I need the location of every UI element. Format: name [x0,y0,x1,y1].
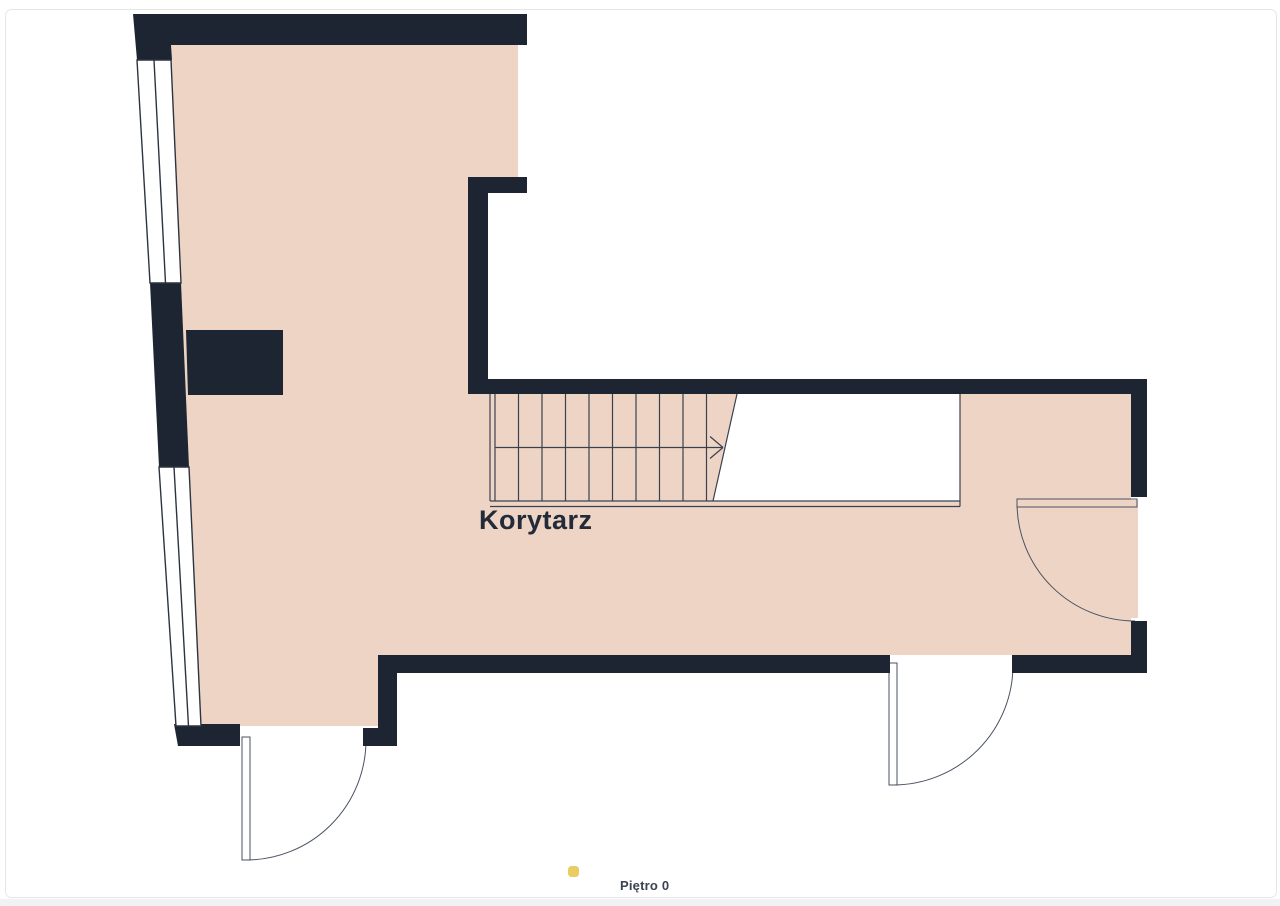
floor-selector-label[interactable]: Piętro 0 [620,878,669,893]
floorplan-viewer: Korytarz Piętro 0 [0,0,1280,906]
wall-corridor-top [468,379,1147,394]
room-label: Korytarz [479,505,593,535]
wall-bottom-left-corner [174,724,240,746]
stairwell-void [713,394,960,501]
floorplan-canvas: Korytarz Piętro 0 [0,0,1280,906]
wall-right-upper [1131,394,1147,497]
footer-strip [0,899,1280,906]
floor-indicator-dot[interactable] [568,866,579,877]
wall-left-stub [186,330,283,395]
